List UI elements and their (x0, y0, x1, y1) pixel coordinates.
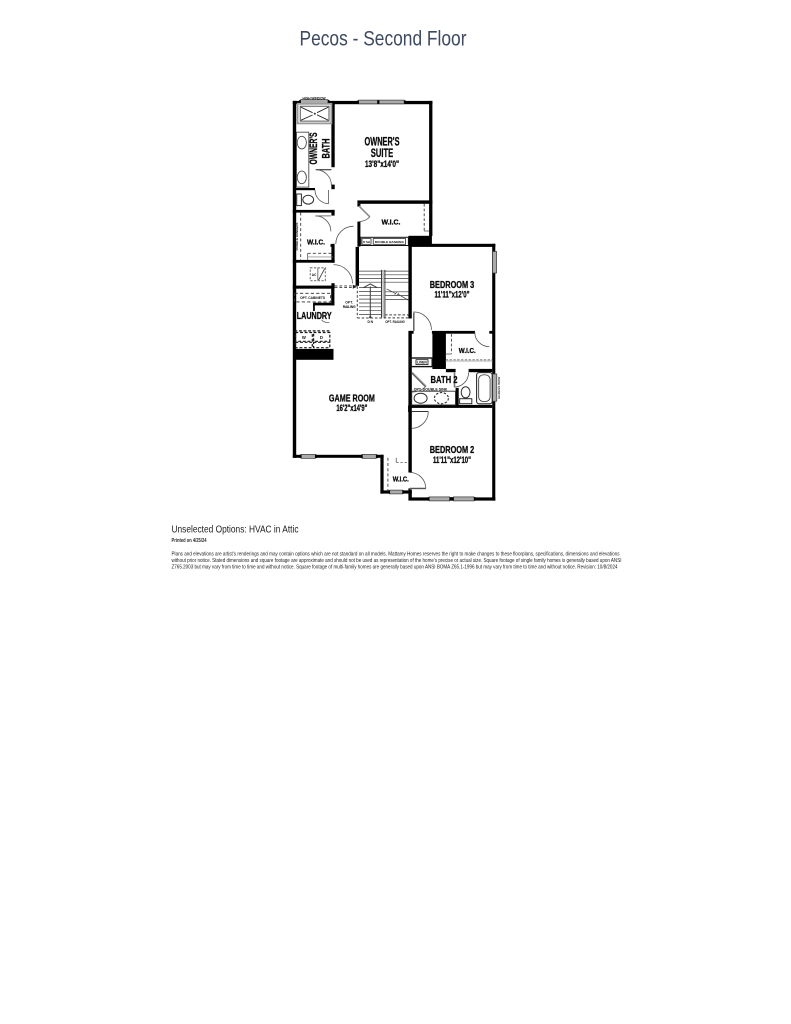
svg-text:11'11"x12'10": 11'11"x12'10" (433, 455, 471, 465)
svg-text:HIGH WINDOW: HIGH WINDOW (303, 97, 326, 101)
svg-text:W.I.C.: W.I.C. (393, 475, 409, 484)
svg-text:DOUBLE HANGERS: DOUBLE HANGERS (295, 222, 299, 250)
svg-text:Printed on 4/25/24: Printed on 4/25/24 (172, 538, 207, 544)
svg-text:DN: DN (368, 320, 374, 324)
svg-text:OPT. RAILING: OPT. RAILING (385, 320, 405, 324)
svg-text:without prior notice. Stated d: without prior notice. Stated dimensions … (171, 558, 622, 564)
svg-text:Pecos - Second Floor: Pecos - Second Floor (300, 27, 467, 51)
svg-text:OWNER'S: OWNER'S (308, 133, 320, 165)
svg-text:Z765.2003 but may vary from ti: Z765.2003 but may vary from time to time… (172, 565, 618, 571)
svg-text:RAILING: RAILING (343, 305, 356, 309)
svg-text:BATH 2: BATH 2 (431, 374, 458, 386)
svg-text:EGRESS WDW: EGRESS WDW (497, 376, 501, 399)
svg-text:OWNER'S: OWNER'S (365, 137, 400, 149)
svg-text:DOUBLE HANGING: DOUBLE HANGING (375, 240, 405, 244)
svg-text:Unselected Options: HVAC in At: Unselected Options: HVAC in Attic (172, 525, 299, 536)
svg-text:LINEN: LINEN (417, 360, 427, 364)
svg-text:W.I.C.: W.I.C. (382, 217, 401, 226)
svg-text:LAUNDRY: LAUNDRY (297, 311, 332, 322)
svg-text:W.I.C.: W.I.C. (459, 346, 476, 355)
svg-text:W.I.C.: W.I.C. (307, 238, 325, 247)
svg-text:O SH: O SH (363, 240, 370, 244)
svg-text:OPT. CABINETS: OPT. CABINETS (300, 296, 326, 300)
svg-text:OPT.: OPT. (345, 301, 353, 305)
svg-text:11'11"x12'0": 11'11"x12'0" (435, 290, 470, 300)
svg-text:16'2"x14'9": 16'2"x14'9" (336, 403, 367, 413)
svg-text:Plans and elevations are artis: Plans and elevations are artist’s render… (172, 552, 620, 558)
svg-text:D: D (320, 335, 323, 340)
svg-text:W: W (302, 335, 306, 340)
svg-text:OPT. DOUBLE SINK: OPT. DOUBLE SINK (414, 388, 448, 392)
svg-text:BATH: BATH (320, 138, 332, 158)
svg-text:AC: AC (312, 273, 317, 277)
svg-text:13'8"x14'0": 13'8"x14'0" (365, 159, 399, 169)
